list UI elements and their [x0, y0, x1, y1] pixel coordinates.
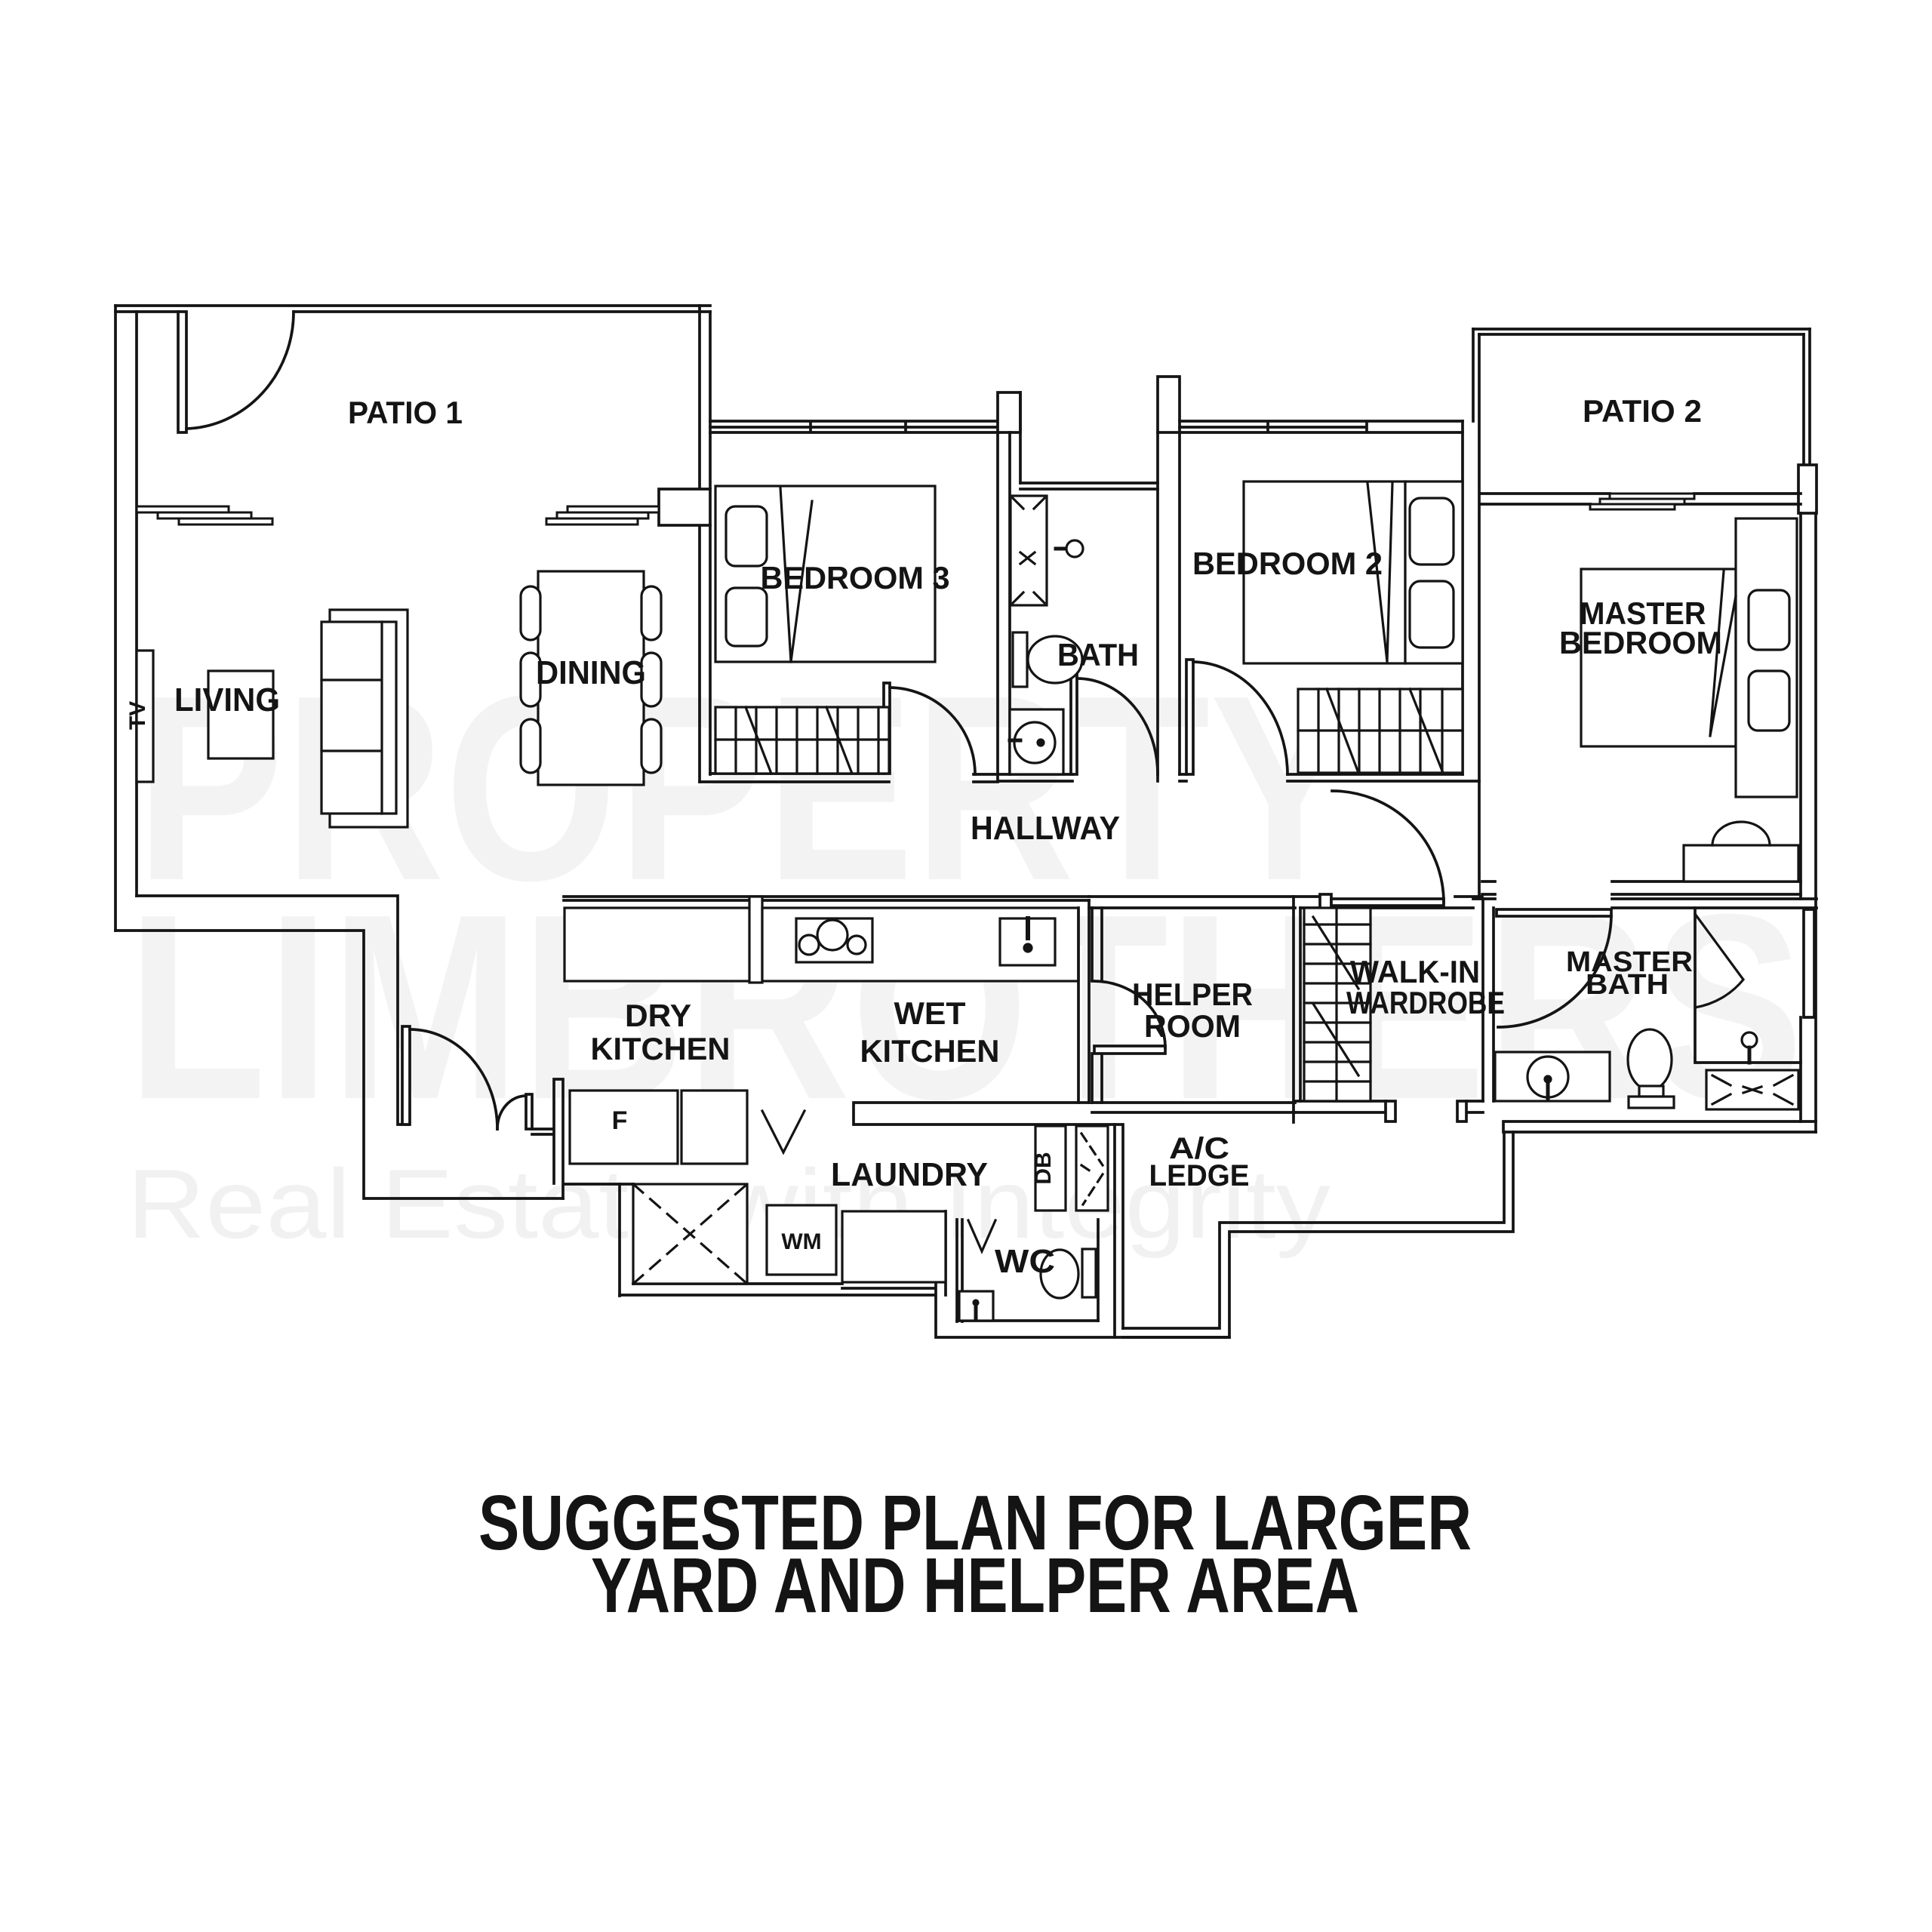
svg-text:BATH: BATH [1057, 637, 1139, 672]
svg-text:DRY: DRY [625, 998, 691, 1033]
svg-text:BEDROOM 3: BEDROOM 3 [761, 560, 950, 595]
svg-text:HELPER: HELPER [1132, 977, 1253, 1012]
svg-text:WC: WC [995, 1243, 1055, 1280]
svg-text:BEDROOM: BEDROOM [1559, 625, 1722, 660]
svg-text:HALLWAY: HALLWAY [971, 810, 1120, 847]
svg-text:KITCHEN: KITCHEN [860, 1033, 1000, 1069]
svg-text:PATIO 1: PATIO 1 [348, 395, 463, 430]
svg-text:F: F [612, 1106, 628, 1135]
svg-text:DINING: DINING [536, 654, 646, 691]
svg-text:DB: DB [1031, 1152, 1056, 1184]
svg-text:WET: WET [894, 995, 966, 1031]
svg-text:WARDROBE: WARDROBE [1346, 985, 1505, 1020]
svg-text:WALK-IN: WALK-IN [1350, 954, 1480, 989]
svg-text:LIVING: LIVING [174, 681, 280, 718]
svg-text:TV: TV [125, 701, 150, 730]
svg-text:BEDROOM 2: BEDROOM 2 [1192, 546, 1383, 581]
svg-text:WM: WM [781, 1229, 821, 1254]
svg-text:ROOM: ROOM [1144, 1008, 1241, 1044]
svg-text:LEDGE: LEDGE [1149, 1159, 1250, 1192]
svg-text:YARD AND HELPER AREA: YARD AND HELPER AREA [591, 1542, 1359, 1629]
svg-text:PATIO 2: PATIO 2 [1583, 393, 1702, 429]
svg-text:BATH: BATH [1586, 969, 1669, 1001]
svg-text:KITCHEN: KITCHEN [591, 1031, 731, 1066]
svg-text:LAUNDRY: LAUNDRY [831, 1156, 988, 1193]
